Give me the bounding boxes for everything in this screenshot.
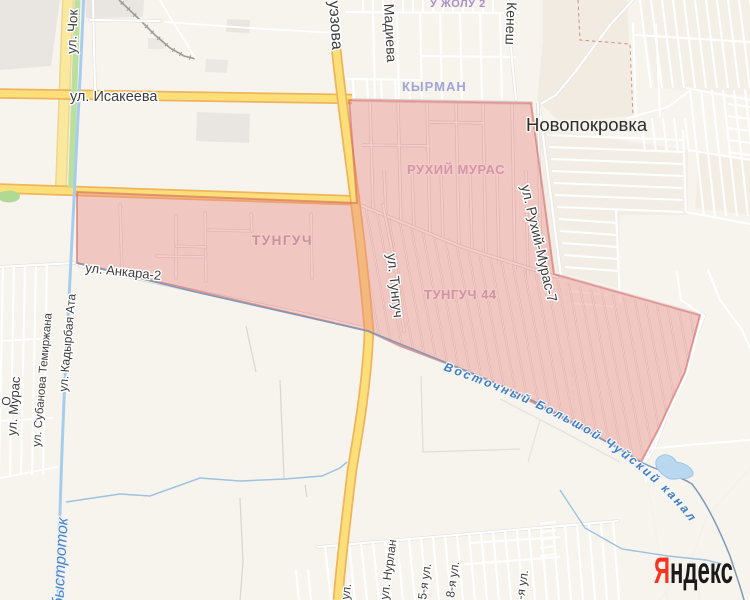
svg-text:ТУНГУЧ 44: ТУНГУЧ 44	[424, 287, 497, 302]
svg-text:ул. Чок: ул. Чок	[64, 9, 81, 54]
svg-text:ул.: ул.	[338, 583, 354, 600]
svg-text:ул. Исакеева: ул. Исакеева	[70, 89, 158, 105]
svg-text:РУХИЙ МУРАС: РУХИЙ МУРАС	[407, 162, 505, 177]
svg-text:ТУНГУЧ: ТУНГУЧ	[252, 233, 313, 248]
svg-text:Яндекс: Яндекс	[654, 550, 733, 591]
svg-text:Кенеш: Кенеш	[503, 2, 520, 45]
svg-text:уэзова: уэзова	[325, 0, 345, 50]
svg-text:КЫРМАН: КЫРМАН	[402, 79, 467, 94]
svg-text:Новопокровка: Новопокровка	[526, 114, 648, 135]
svg-text:О: О	[0, 396, 14, 406]
svg-text:Мадиева: Мадиева	[381, 3, 400, 62]
svg-text:У ЖОЛУ 2: У ЖОЛУ 2	[430, 0, 486, 10]
